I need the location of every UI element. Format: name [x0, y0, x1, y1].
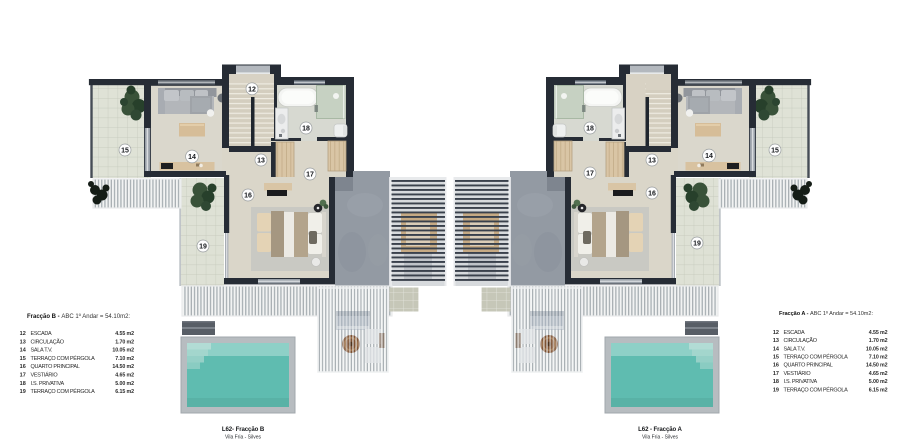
svg-text:17: 17 — [586, 171, 594, 178]
svg-text:TERRAÇO COM PÉRGOLA: TERRAÇO COM PÉRGOLA — [784, 386, 849, 393]
svg-text:10.05 m2: 10.05 m2 — [866, 346, 888, 352]
svg-text:15: 15 — [20, 356, 26, 362]
svg-text:19: 19 — [773, 387, 779, 393]
svg-text:6.15 m2: 6.15 m2 — [869, 387, 888, 393]
svg-text:7.10 m2: 7.10 m2 — [115, 356, 134, 362]
svg-text:L62- Fracção B: L62- Fracção B — [222, 426, 265, 433]
svg-text:Vila Fria - Silves: Vila Fria - Silves — [225, 435, 262, 441]
svg-text:CIRCULAÇÃO: CIRCULAÇÃO — [784, 337, 818, 344]
svg-text:Fracção A - ABC 1º Andar = 54.: Fracção A - ABC 1º Andar = 54.10m2: — [779, 310, 873, 317]
svg-text:4.55 m2: 4.55 m2 — [115, 331, 134, 337]
svg-text:12: 12 — [20, 331, 26, 337]
svg-text:16: 16 — [648, 191, 656, 198]
svg-text:10.05 m2: 10.05 m2 — [112, 348, 134, 354]
svg-text:15: 15 — [771, 148, 779, 155]
svg-text:17: 17 — [20, 373, 26, 379]
svg-text:7.10 m2: 7.10 m2 — [869, 355, 888, 361]
svg-text:15: 15 — [121, 148, 129, 155]
svg-text:19: 19 — [20, 389, 26, 395]
svg-text:16: 16 — [20, 364, 26, 370]
svg-text:1.70 m2: 1.70 m2 — [115, 339, 134, 345]
svg-text:14.50 m2: 14.50 m2 — [866, 363, 888, 369]
svg-text:18: 18 — [302, 126, 310, 133]
svg-text:18: 18 — [586, 126, 594, 133]
svg-text:6.15 m2: 6.15 m2 — [115, 389, 134, 395]
svg-text:1.70 m2: 1.70 m2 — [869, 338, 888, 344]
svg-text:Vila Fria - Silves: Vila Fria - Silves — [642, 435, 679, 441]
svg-text:TERRAÇO COM PÉRGOLA: TERRAÇO COM PÉRGOLA — [31, 388, 96, 395]
svg-text:SALA T.V.: SALA T.V. — [31, 348, 53, 354]
svg-text:4.55 m2: 4.55 m2 — [869, 330, 888, 336]
svg-text:SALA T.V.: SALA T.V. — [784, 346, 806, 352]
svg-text:18: 18 — [20, 381, 26, 387]
svg-text:14: 14 — [705, 153, 713, 160]
svg-text:CIRCULAÇÃO: CIRCULAÇÃO — [31, 338, 65, 345]
svg-text:VESTIÁRIO: VESTIÁRIO — [784, 370, 812, 377]
svg-text:13: 13 — [257, 158, 265, 165]
svg-text:12: 12 — [248, 86, 256, 93]
svg-text:I.S. PRIVATIVA: I.S. PRIVATIVA — [784, 379, 818, 385]
svg-text:16: 16 — [244, 193, 252, 200]
svg-text:12: 12 — [773, 330, 779, 336]
svg-text:ESCADA: ESCADA — [784, 330, 806, 336]
svg-text:17: 17 — [773, 371, 779, 377]
svg-text:14: 14 — [188, 154, 196, 161]
svg-text:4.65 m2: 4.65 m2 — [115, 373, 134, 379]
svg-text:14: 14 — [773, 346, 780, 352]
svg-text:5.00 m2: 5.00 m2 — [869, 379, 888, 385]
svg-text:QUARTO PRINCIPAL: QUARTO PRINCIPAL — [31, 364, 80, 370]
svg-text:19: 19 — [199, 244, 207, 251]
svg-text:14: 14 — [20, 348, 27, 354]
svg-text:15: 15 — [773, 355, 779, 361]
svg-text:18: 18 — [773, 379, 779, 385]
svg-text:ESCADA: ESCADA — [31, 331, 53, 337]
svg-text:Fracção B - ABC 1º Andar = 54.: Fracção B - ABC 1º Andar = 54.10m2: — [27, 313, 130, 320]
svg-text:VESTIÁRIO: VESTIÁRIO — [31, 372, 59, 379]
svg-text:13: 13 — [648, 158, 656, 165]
svg-text:13: 13 — [773, 338, 779, 344]
svg-text:14.50 m2: 14.50 m2 — [112, 364, 134, 370]
svg-text:16: 16 — [773, 363, 779, 369]
svg-text:TERRAÇO COM PÉRGOLA: TERRAÇO COM PÉRGOLA — [31, 355, 96, 362]
svg-text:13: 13 — [20, 339, 26, 345]
svg-text:19: 19 — [693, 241, 701, 248]
svg-text:4.65 m2: 4.65 m2 — [869, 371, 888, 377]
svg-text:QUARTO PRINCIPAL: QUARTO PRINCIPAL — [784, 363, 833, 369]
svg-text:L62 - Fracção A: L62 - Fracção A — [638, 426, 682, 433]
svg-text:5.00 m2: 5.00 m2 — [115, 381, 134, 387]
svg-text:TERRAÇO COM PÉRGOLA: TERRAÇO COM PÉRGOLA — [784, 354, 849, 361]
svg-text:I.S. PRIVATIVA: I.S. PRIVATIVA — [31, 381, 65, 387]
svg-text:17: 17 — [306, 172, 314, 179]
